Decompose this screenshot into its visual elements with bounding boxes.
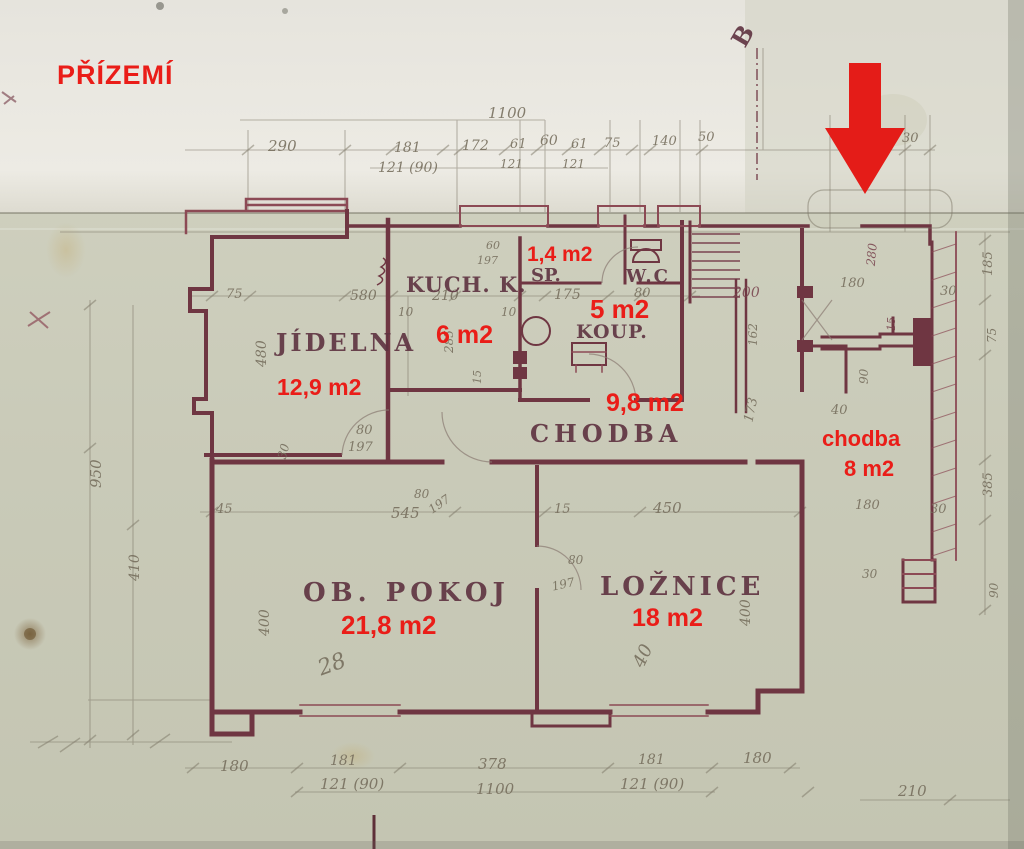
- dimension-label: 385: [981, 472, 996, 497]
- dimension-label: 140: [652, 134, 677, 149]
- dimension-label: 180: [855, 498, 880, 513]
- dimension-label: 61: [571, 137, 588, 152]
- ink-stain-core: [24, 628, 36, 640]
- paper-speck: [282, 8, 288, 14]
- dimension-label: 75: [226, 287, 243, 302]
- dimension-label: 400: [738, 599, 754, 627]
- dimension-label: 75: [604, 136, 621, 151]
- dimension-label: 185: [981, 251, 996, 276]
- dimension-label: 450: [652, 499, 682, 517]
- dimension-label: 15: [885, 317, 898, 331]
- area-chodba: 9,8 m2: [606, 389, 684, 417]
- area-obyvaci-pokoj: 21,8 m2: [341, 610, 436, 640]
- area-koupelna: 5 m2: [590, 294, 649, 324]
- dimension-label: 480: [254, 340, 270, 368]
- dimension-label: 45: [215, 502, 233, 517]
- dimension-label: 181: [638, 752, 665, 768]
- door-frame-block: [797, 286, 813, 298]
- room-label-koupelna: KOUP.: [576, 321, 648, 343]
- dimension-label: 121: [500, 157, 523, 171]
- dimension-label: 30: [862, 567, 878, 581]
- dimension-label: 60: [540, 133, 558, 149]
- dimension-label: 280: [864, 242, 880, 267]
- dimension-label: 30: [940, 284, 957, 299]
- entry-pier-block: [913, 318, 931, 366]
- dimension-label: 210: [897, 782, 927, 800]
- dimension-label: 400: [257, 609, 273, 637]
- dimension-label: 40: [830, 403, 848, 418]
- dimension-label: 180: [840, 276, 865, 291]
- area-spiz: 1,4 m2: [527, 243, 592, 266]
- dimension-label: 197: [348, 440, 374, 455]
- dimension-label: 410: [127, 554, 143, 582]
- dimension-label: 1100: [488, 104, 527, 122]
- room-label-kuchyn: KUCH. K.: [406, 272, 527, 297]
- dimension-label: 172: [462, 138, 489, 154]
- dimension-label: 175: [554, 287, 581, 303]
- dimension-label: 10: [398, 305, 414, 319]
- dimension-label: 15: [471, 370, 484, 384]
- paper-speck: [156, 2, 164, 10]
- floorplan-drawing: 1100 290 181 121 (90) 172 61 121 60 61 1…: [0, 0, 1024, 849]
- scanned-floorplan-photo: 1100 290 181 121 (90) 172 61 121 60 61 1…: [0, 0, 1024, 849]
- room-label-obyvaci-pokoj: OB. POKOJ: [303, 578, 510, 608]
- dimension-label: 181: [394, 140, 421, 156]
- dimension-label: 80: [356, 423, 373, 438]
- flue-block: [513, 367, 527, 379]
- room-label-chodba: CHODBA: [530, 419, 682, 448]
- dimension-label: 61: [510, 137, 527, 152]
- area-chodba-vstup: 8 m2: [844, 456, 894, 481]
- dimension-label: 121 (90): [320, 775, 384, 793]
- area-loznice: 18 m2: [632, 604, 703, 632]
- photo-edge-shadow-bottom: [0, 841, 1024, 849]
- dimension-label: 10: [501, 305, 517, 319]
- dimension-label: 180: [220, 757, 249, 775]
- dimension-label: 121 (90): [378, 160, 438, 176]
- flue-block: [513, 351, 527, 364]
- room-label-jidelna: JÍDELNA: [274, 328, 416, 357]
- room-label-wc: W.C: [625, 266, 670, 287]
- dimension-label: 290: [267, 137, 297, 155]
- dimension-label: 1100: [476, 780, 515, 798]
- area-jidelna: 12,9 m2: [277, 374, 361, 400]
- dimension-label: 75: [985, 328, 999, 343]
- dimension-label: 121 (90): [620, 775, 684, 793]
- dimension-label: 90: [987, 582, 1001, 598]
- area-kuchyn: 6 m2: [436, 321, 493, 349]
- dimension-label: 30: [902, 131, 919, 146]
- room-label-loznice: LOŽNICE: [600, 570, 764, 602]
- dimension-label: 162: [746, 323, 760, 346]
- dimension-label: 181: [330, 753, 357, 769]
- dimension-label: 30: [930, 502, 947, 517]
- room-label-spiz: SP.: [531, 265, 561, 286]
- floor-title: PŘÍZEMÍ: [57, 59, 174, 90]
- dimension-label: 580: [350, 288, 377, 304]
- dimension-label: 50: [698, 130, 715, 145]
- label-chodba-vstup: chodba: [822, 426, 901, 451]
- dimension-label: 15: [554, 502, 571, 517]
- dimension-label: 378: [478, 755, 507, 773]
- dimension-label: 180: [743, 749, 772, 767]
- dimension-label: 121: [562, 157, 585, 171]
- dimension-label: 197: [477, 254, 498, 267]
- dimension-label: 80: [414, 487, 430, 501]
- dimension-label: 200: [732, 285, 760, 301]
- dimension-label: 80: [568, 553, 584, 567]
- dimension-label: 545: [391, 504, 420, 522]
- paper-stain: [46, 222, 86, 278]
- dimension-label: 950: [87, 459, 105, 488]
- photo-edge-shadow: [1008, 0, 1024, 849]
- dimension-label: 60: [486, 239, 500, 252]
- dimension-label: 90: [857, 368, 871, 384]
